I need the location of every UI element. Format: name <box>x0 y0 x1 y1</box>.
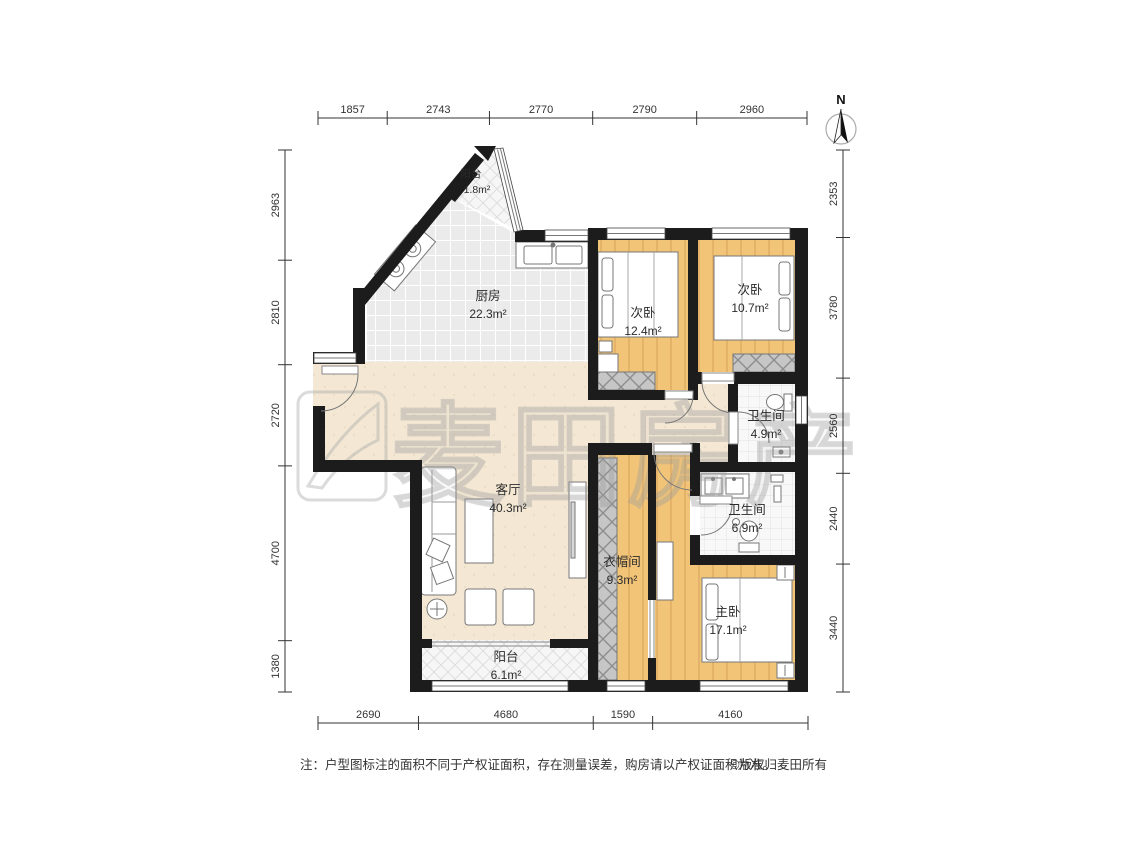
dimension-line-bottom: 2690468015904160 <box>318 709 808 730</box>
label-bathroom-a-area: 4.9m² <box>751 427 782 441</box>
label-cloakroom-name: 衣帽间 <box>603 554 641 569</box>
kitchen-sink-basin <box>556 246 582 264</box>
wall-living-top-left <box>313 460 420 472</box>
window-master-bottom <box>700 681 788 691</box>
label-balcony-bottom-name: 阳台 <box>493 649 518 664</box>
pillow-icon <box>602 295 613 328</box>
label-master-name: 主卧 <box>715 605 740 619</box>
window-kitchen-top <box>545 230 588 241</box>
floorplan-canvas: 麦田房产 <box>0 0 1125 844</box>
window-balcony-bottom <box>432 681 568 691</box>
wall-bathroom-b-left <box>690 472 700 496</box>
wall-balcony-nub <box>420 639 432 648</box>
toilet-tank-icon <box>739 543 759 552</box>
label-bathroom-b-name: 卫生间 <box>728 503 766 517</box>
floorplan-svg: 麦田房产 <box>0 0 1125 844</box>
dimension-label: 2770 <box>529 104 553 116</box>
dimension-label: 2560 <box>828 413 840 437</box>
dimension-label: 2960 <box>740 104 764 116</box>
window-bathroom-a <box>796 396 807 424</box>
window-bedroom-b <box>712 228 790 239</box>
label-bedroom-a-area: 12.4m² <box>624 324 661 338</box>
sliding-door-cloakroom <box>650 600 654 658</box>
dimension-label: 1380 <box>270 654 282 678</box>
wall-bathroom-a-left <box>728 444 738 462</box>
label-bathroom-a-name: 卫生间 <box>747 409 785 423</box>
bedroom-b-wardrobe <box>733 354 795 372</box>
wall-bathroom-a-left <box>728 384 738 412</box>
wall-cloakroom-right <box>648 455 656 600</box>
wall-bedroom-b-bottom <box>698 372 702 384</box>
window-bedroom-a <box>607 228 665 239</box>
label-kitchen-area: 22.3m² <box>469 307 506 321</box>
dimension-label: 4680 <box>494 709 518 721</box>
ottoman <box>465 589 496 625</box>
wall-bathrooms-divider <box>690 462 808 472</box>
kitchen-faucet-icon <box>551 243 555 247</box>
dimension-label: 2720 <box>270 403 282 427</box>
label-balcony-top-area: 1.8m² <box>464 184 491 196</box>
dimension-label: 1590 <box>611 709 635 721</box>
disclaimer-text: 注：户型图标注的面积不同于产权证面积，存在测量误差，购房请以产权证面积为准。 <box>300 757 775 772</box>
wall-bedroom-a-bottom <box>588 390 665 400</box>
master-dresser <box>657 542 673 600</box>
dimension-label: 3780 <box>828 296 840 320</box>
watermark-text: 麦田房产 <box>392 395 864 520</box>
dimension-label: 2690 <box>356 709 380 721</box>
north-label: N <box>836 92 845 107</box>
wall-bedroom-divider <box>688 240 698 380</box>
pillow-icon <box>779 298 790 331</box>
label-balcony-bottom-area: 6.1m² <box>491 668 522 682</box>
wall-cloakroom-left <box>588 443 598 692</box>
label-balcony-top-name: 阳台 <box>461 167 482 180</box>
dimension-label: 2353 <box>828 182 840 206</box>
label-bedroom-a-name: 次卧 <box>630 306 655 320</box>
label-kitchen-name: 厨房 <box>475 288 500 303</box>
kitchen-sink-basin <box>524 246 552 264</box>
pillow-icon <box>602 258 613 291</box>
window-entry-left <box>314 353 356 363</box>
dimension-label: 1857 <box>340 104 364 116</box>
dimension-label: 2963 <box>270 193 282 217</box>
north-arrow: N <box>826 92 856 144</box>
wall-cloakroom-right <box>648 658 656 682</box>
ottoman <box>503 589 534 625</box>
bedroom-a-side-table <box>599 341 612 352</box>
label-living-name: 客厅 <box>495 482 520 497</box>
window-cloakroom-bottom <box>607 681 645 691</box>
dimension-label: 2440 <box>828 506 840 530</box>
label-living-area: 40.3m² <box>489 501 526 515</box>
pillow-icon <box>779 262 790 295</box>
wall-master-top <box>690 555 808 565</box>
label-bedroom-b-area: 10.7m² <box>731 301 768 315</box>
dimension-label: 2810 <box>270 300 282 324</box>
dimension-line-top: 18572743277027902960 <box>318 104 807 125</box>
wall-living-left <box>410 460 422 692</box>
label-cloakroom-area: 9.3m² <box>607 573 638 587</box>
label-bathroom-b-area: 6.9m² <box>732 521 763 535</box>
dimension-label: 3440 <box>828 616 840 640</box>
wall-balcony-nub <box>550 639 588 648</box>
dimension-label: 4160 <box>718 709 742 721</box>
dimension-label: 2743 <box>426 104 450 116</box>
dimension-label: 4700 <box>270 541 282 565</box>
copyright-text: ©版权归麦田所有 <box>730 757 827 772</box>
wall-bedroom-a-left <box>588 240 598 400</box>
label-master-area: 17.1m² <box>709 623 746 637</box>
label-bedroom-b-name: 次卧 <box>737 283 762 297</box>
dimension-label: 2790 <box>632 104 656 116</box>
bedroom-a-wardrobe <box>598 372 655 390</box>
wall-right-exterior <box>795 228 808 692</box>
footnote: 注：户型图标注的面积不同于产权证面积，存在测量误差，购房请以产权证面积为准。 ©… <box>300 757 827 772</box>
dimension-line-left: 29632810272047001380 <box>270 150 292 692</box>
wall-bedroom-b-bottom <box>734 372 808 384</box>
